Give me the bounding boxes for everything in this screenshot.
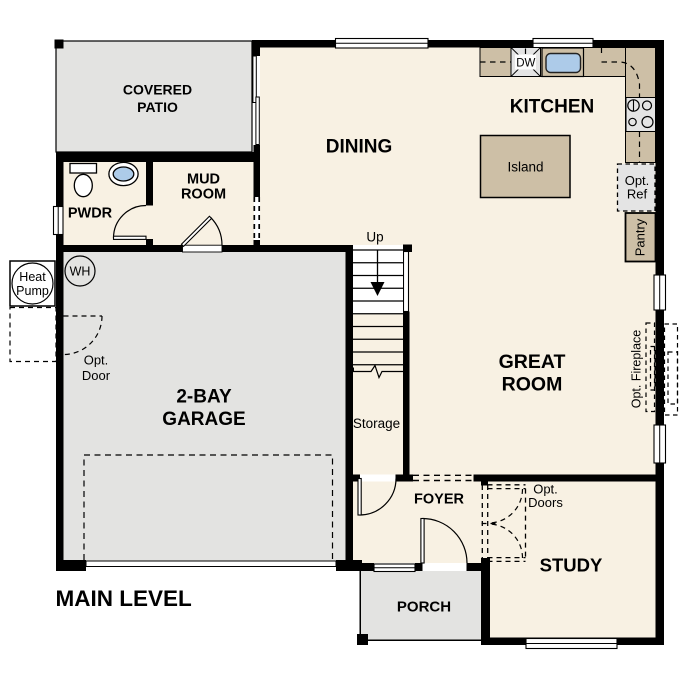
svg-text:Storage: Storage bbox=[353, 416, 400, 431]
svg-text:MAIN LEVEL: MAIN LEVEL bbox=[56, 586, 193, 611]
svg-text:Pantry: Pantry bbox=[633, 218, 648, 256]
svg-text:FOYER: FOYER bbox=[414, 492, 464, 508]
svg-text:2-BAY: 2-BAY bbox=[176, 387, 232, 408]
svg-text:Ref: Ref bbox=[627, 187, 648, 202]
svg-text:ROOM: ROOM bbox=[502, 374, 563, 396]
svg-text:Opt.: Opt. bbox=[84, 353, 109, 368]
svg-text:WH: WH bbox=[70, 264, 91, 278]
svg-text:Opt.: Opt. bbox=[533, 481, 558, 496]
svg-text:GARAGE: GARAGE bbox=[162, 409, 245, 430]
svg-text:ROOM: ROOM bbox=[181, 187, 226, 203]
svg-text:GREAT: GREAT bbox=[499, 351, 566, 373]
svg-text:Door: Door bbox=[82, 368, 111, 383]
svg-text:MUD: MUD bbox=[187, 172, 220, 188]
svg-text:DW: DW bbox=[516, 57, 535, 69]
svg-text:Pump: Pump bbox=[16, 284, 49, 298]
svg-text:Opt. Fireplace: Opt. Fireplace bbox=[630, 330, 644, 409]
svg-text:PWDR: PWDR bbox=[68, 206, 113, 222]
svg-text:Doors: Doors bbox=[528, 495, 563, 510]
svg-text:Heat: Heat bbox=[19, 270, 46, 284]
svg-text:KITCHEN: KITCHEN bbox=[510, 96, 594, 117]
svg-text:Up: Up bbox=[366, 230, 383, 245]
svg-text:PORCH: PORCH bbox=[397, 599, 451, 616]
svg-text:PATIO: PATIO bbox=[137, 99, 178, 115]
svg-text:DINING: DINING bbox=[326, 137, 393, 158]
svg-text:STUDY: STUDY bbox=[540, 555, 603, 576]
svg-text:Island: Island bbox=[507, 160, 543, 175]
svg-text:COVERED: COVERED bbox=[123, 82, 192, 98]
